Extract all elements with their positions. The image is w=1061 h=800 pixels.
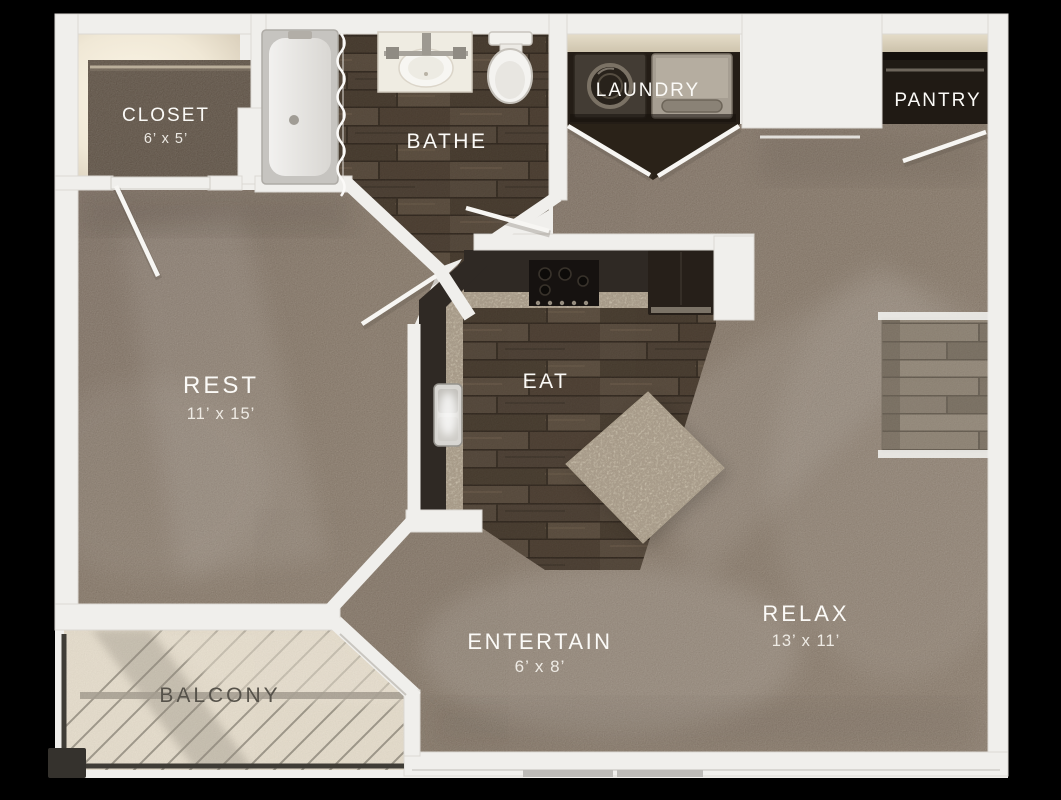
bathe-label: BATHE bbox=[407, 130, 488, 153]
pantry-closet bbox=[882, 52, 988, 124]
floor-plan-screenshot: CLOSET 6’ x 5’ BATHE LAUNDRY PANTRY REST… bbox=[0, 0, 1061, 800]
pantry-label: PANTRY bbox=[894, 90, 981, 111]
entertain-label: ENTERTAIN bbox=[467, 629, 612, 654]
rest-dims: 11’ x 15’ bbox=[187, 405, 256, 423]
wall-right bbox=[988, 14, 1008, 776]
toilet bbox=[488, 32, 532, 103]
bathtub bbox=[262, 30, 338, 184]
pantry-interior bbox=[882, 52, 988, 124]
wall-bottom bbox=[404, 752, 1008, 776]
closet-dims: 6’ x 5’ bbox=[144, 131, 188, 147]
entertain-dims: 6’ x 8’ bbox=[515, 657, 566, 676]
plan: CLOSET 6’ x 5’ BATHE LAUNDRY PANTRY REST… bbox=[12, 14, 1030, 780]
wall-bath-right bbox=[549, 14, 567, 200]
closet-door-threshold bbox=[111, 177, 210, 189]
eat-label: EAT bbox=[523, 370, 570, 393]
window-strip-1 bbox=[523, 770, 613, 777]
wall-entry-stub-top bbox=[878, 312, 990, 320]
closet-label: CLOSET bbox=[122, 105, 210, 126]
refrigerator bbox=[648, 250, 714, 315]
kitchen-sink bbox=[434, 384, 462, 446]
wall-left bbox=[55, 14, 78, 614]
wall-kitchen-top bbox=[474, 234, 754, 250]
vanity-sink bbox=[378, 32, 472, 92]
wall-entry-stub-bottom bbox=[878, 450, 990, 458]
window-strip-2 bbox=[617, 770, 703, 777]
relax-dims: 13’ x 11’ bbox=[772, 632, 841, 650]
balcony-post bbox=[48, 748, 86, 778]
wall-block-laundry-pantry bbox=[742, 14, 882, 128]
wall-rest-balcony bbox=[55, 604, 340, 630]
stove bbox=[529, 260, 599, 306]
relax-label: RELAX bbox=[762, 601, 849, 626]
floor-plan-canvas: CLOSET 6’ x 5’ BATHE LAUNDRY PANTRY REST… bbox=[0, 0, 1061, 800]
rest-label: REST bbox=[183, 372, 259, 399]
balcony-label: BALCONY bbox=[159, 684, 280, 707]
wall-kitchen-right bbox=[714, 236, 754, 320]
wall-closet-bottom-left bbox=[55, 176, 113, 190]
laundry-label: LAUNDRY bbox=[596, 80, 700, 101]
wall-closet-bottom-right bbox=[208, 176, 242, 190]
